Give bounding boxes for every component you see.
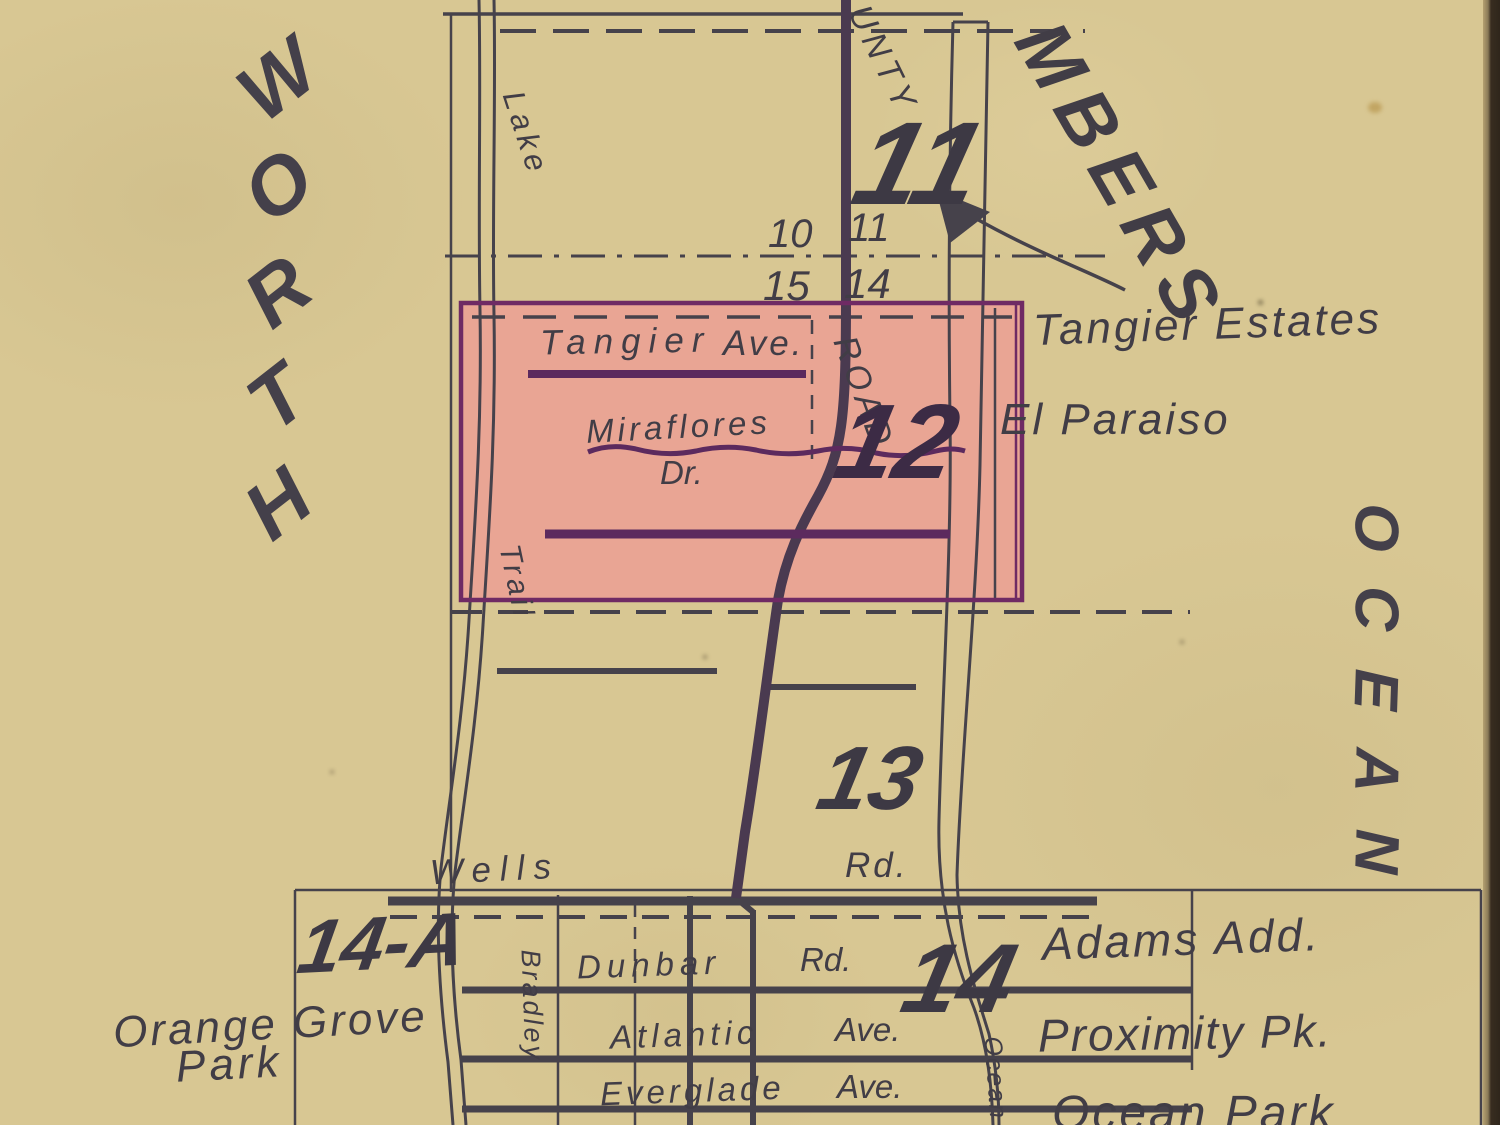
miraflores-dr-suffix: Dr. [660,454,703,492]
adams-add-label: Adams Add. [1041,907,1322,971]
dunbar-rd-suffix: Rd. [800,941,851,979]
ocean-label: OCEAN [1352,492,1400,887]
atlantic-ave-label: Atlantic [609,1013,758,1056]
lake-worth-label: WORTH [240,34,316,550]
bradley-street-label: Bradley [515,949,550,1063]
corner-number-15: 15 [763,262,810,310]
paper-speck-3 [1180,640,1184,644]
everglade-ave-label: Everglade [599,1069,785,1113]
wells-rd-suffix: Rd. [845,846,908,886]
dunbar-rd-label: Dunbar [576,943,721,986]
tangier-ave-suffix: Ave. [723,324,804,364]
atlantic-ave-suffix: Ave. [835,1011,900,1049]
ocean-park-label: Ocean Park [1052,1086,1335,1125]
corner-number-11: 11 [848,206,890,251]
map-sheet-edge [1483,0,1500,1125]
el-paraiso-label: El Paraiso [1000,395,1231,445]
section-14a-number: 14-A [292,896,472,992]
plat-map: WORTH OCEAN MBERS UNTY ROAD Lake Trail B… [0,0,1500,1125]
paper-speck-2 [703,655,707,659]
corner-number-14: 14 [844,260,891,308]
paper-stain [1368,102,1382,113]
tangier-ave-label: Tangier [540,321,712,364]
ocean-blvd-small-label: Ocean [978,1035,1013,1120]
paper-speck-1 [1258,300,1263,305]
paper-speck-4 [330,770,334,774]
everglade-ave-suffix: Ave. [837,1068,902,1106]
wells-rd-label: Wells [429,847,561,894]
proximity-pk-label: Proximity Pk. [1038,1003,1333,1062]
orange-grove-park-label-line2: Park [175,1037,284,1093]
corner-number-10: 10 [768,212,813,257]
